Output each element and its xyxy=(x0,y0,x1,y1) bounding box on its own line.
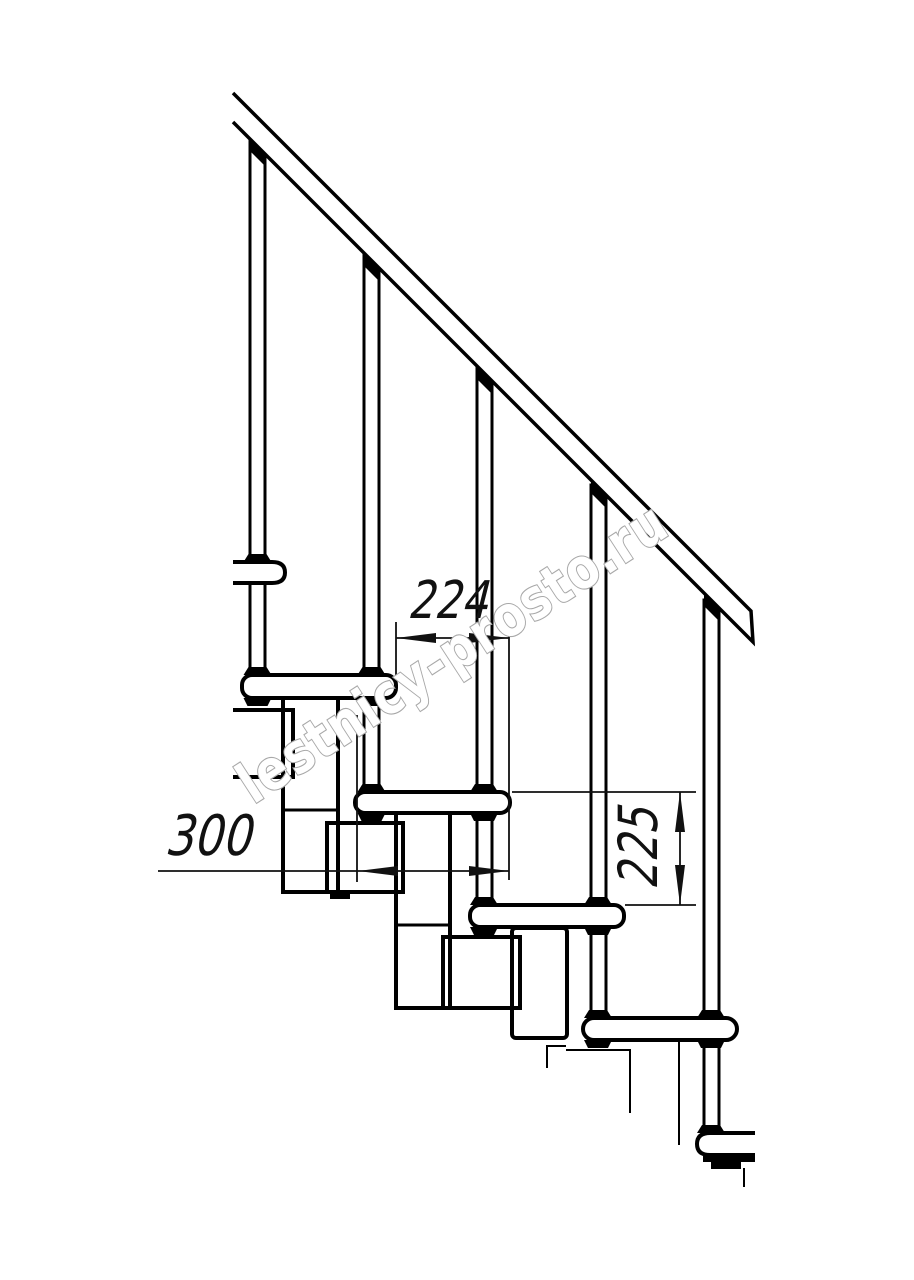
watermark: lestnicy-prosto.ru xyxy=(225,490,680,817)
collar xyxy=(697,1125,725,1133)
collar xyxy=(584,897,612,905)
spine-module-h2 xyxy=(443,937,520,1008)
collar xyxy=(584,1010,612,1018)
cut-line xyxy=(547,1046,566,1068)
cut-line xyxy=(566,1050,630,1113)
collar xyxy=(244,554,272,562)
collar xyxy=(358,784,386,792)
pad xyxy=(584,927,612,935)
pad xyxy=(244,698,272,706)
staircase-drawing: 224 300 225 lestnicy-prosto.ru xyxy=(0,0,914,1280)
pad xyxy=(584,1040,612,1048)
pad xyxy=(470,927,498,935)
tread-2 xyxy=(355,792,510,813)
pad-bar xyxy=(711,1162,741,1169)
pad xyxy=(697,1040,725,1048)
pad xyxy=(470,813,498,821)
collar xyxy=(697,1010,725,1018)
arrow-up xyxy=(675,792,685,832)
collar xyxy=(470,784,498,792)
tread-5 xyxy=(697,1133,755,1155)
baluster-1 xyxy=(250,140,265,675)
baluster-5 xyxy=(704,600,719,1133)
module-notch xyxy=(330,892,350,899)
pad-bar xyxy=(703,1153,755,1162)
collar xyxy=(470,897,498,905)
tread-0 xyxy=(233,562,285,583)
tread-4 xyxy=(583,1018,737,1040)
drawing-svg: 224 300 225 lestnicy-prosto.ru xyxy=(0,0,914,1280)
dimension-225-label: 225 xyxy=(607,795,670,893)
arrow-down xyxy=(675,865,685,905)
pad xyxy=(358,813,386,821)
dimension-300-label: 300 xyxy=(161,804,263,869)
tread-3 xyxy=(470,905,624,927)
collar xyxy=(244,667,272,675)
